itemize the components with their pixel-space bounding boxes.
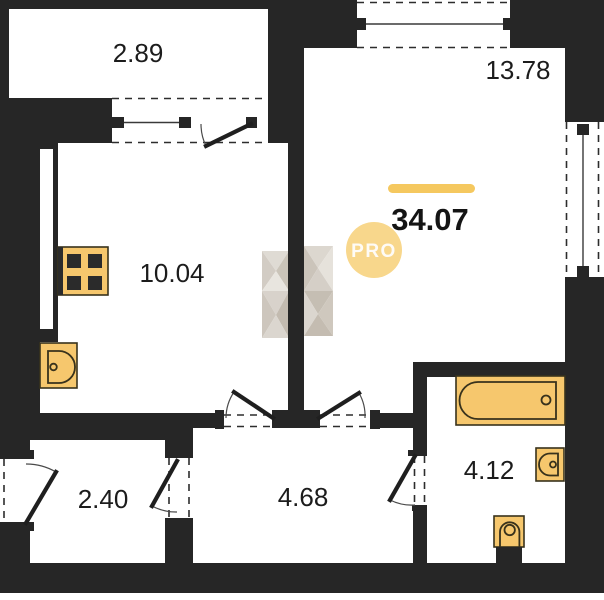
window-frame-block xyxy=(354,18,366,30)
wall-segment xyxy=(0,440,30,450)
wall-segment xyxy=(165,440,193,450)
wall-segment xyxy=(413,511,427,563)
door-frame xyxy=(165,518,193,526)
total-area-underline xyxy=(388,184,475,193)
area-label-kitchen: 10.04 xyxy=(139,258,204,288)
floor-plan-canvas: PRO 34.07 2.89 13.78 10.04 2.40 4.68 4.1… xyxy=(0,0,604,600)
area-label-entry-closet: 2.40 xyxy=(78,484,129,514)
door-swing-arc xyxy=(390,500,415,505)
door-leaf xyxy=(234,392,273,418)
doors xyxy=(26,124,415,523)
area-label-hallway: 4.68 xyxy=(278,482,329,512)
entry-door xyxy=(26,464,56,523)
central-wall xyxy=(288,48,304,410)
wall-segment xyxy=(510,0,604,48)
door-leaf xyxy=(390,456,415,500)
wall-segment xyxy=(565,277,604,563)
door-frame xyxy=(0,522,34,531)
door-frame xyxy=(0,450,34,459)
wall-segment xyxy=(0,0,9,98)
wall-segment xyxy=(0,413,193,440)
living-room-door xyxy=(319,393,365,418)
bathtub-icon xyxy=(456,376,565,425)
floor-plan: PRO 34.07 2.89 13.78 10.04 2.40 4.68 4.1… xyxy=(0,0,604,600)
toilet-icon xyxy=(494,516,524,563)
door-frame xyxy=(215,410,224,429)
wall-segment xyxy=(165,526,193,563)
wall-segment xyxy=(268,0,357,48)
duct-inner-wall xyxy=(53,149,58,329)
wall-segment xyxy=(268,48,288,143)
door-frame xyxy=(412,505,427,511)
window-frame-block xyxy=(112,117,124,128)
wall-segment xyxy=(0,531,30,563)
kitchen-door xyxy=(226,392,273,418)
window-frame-block xyxy=(577,124,589,135)
wall-segment xyxy=(413,377,427,450)
window-frame-block xyxy=(179,117,191,128)
door-swing-arc xyxy=(26,464,56,472)
kitchen-sink-icon xyxy=(40,343,77,388)
wall-segment xyxy=(272,410,320,428)
total-area-label: 34.07 xyxy=(391,202,469,237)
bathroom-door xyxy=(390,456,415,505)
area-label-balcony: 2.89 xyxy=(113,38,164,68)
wall-segment xyxy=(565,48,604,122)
bathroom-sink-icon xyxy=(536,448,564,481)
wall-segment xyxy=(0,563,604,593)
closet-door xyxy=(152,461,177,512)
area-label-bathroom: 4.12 xyxy=(464,455,515,485)
door-swing-arc xyxy=(152,506,177,512)
wall-segment xyxy=(0,98,112,143)
pro-badge-label: PRO xyxy=(351,241,397,262)
door-frame xyxy=(165,450,193,458)
window-frame-block xyxy=(503,18,515,30)
wall-segment xyxy=(413,362,565,377)
door-leaf xyxy=(26,472,56,523)
window-frame-block xyxy=(577,266,589,277)
door-swing-arc xyxy=(226,392,234,418)
wall-segment xyxy=(190,413,215,428)
stove-icon xyxy=(58,247,108,295)
area-label-living-room: 13.78 xyxy=(485,55,550,85)
door-leaf xyxy=(152,461,177,506)
duct-cap xyxy=(40,143,58,149)
duct-cap xyxy=(40,329,58,342)
wall-segment xyxy=(0,143,40,413)
